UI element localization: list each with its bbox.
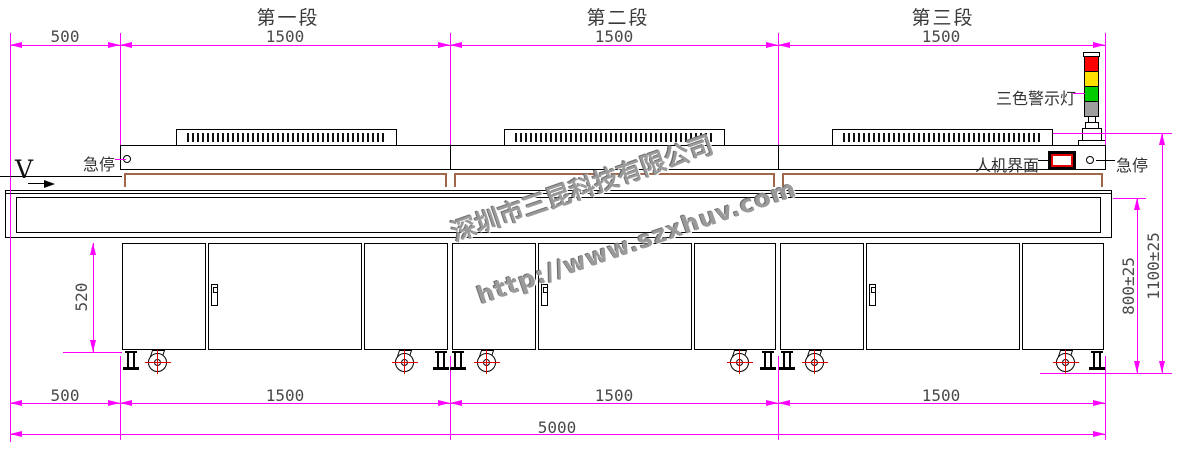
dim-arrow [438, 42, 450, 48]
segment1-vent-grille [176, 129, 397, 146]
dim-arrow [778, 42, 790, 48]
caster-cross-h [145, 362, 171, 363]
dim-arrow [1134, 361, 1140, 373]
leader-line [1038, 160, 1048, 161]
dim-bottom-500: 500 [20, 386, 110, 405]
dim-top-500: 500 [20, 27, 110, 46]
cabinet-panel [694, 243, 776, 350]
dimension-line [450, 33, 451, 145]
foot-stem [789, 353, 791, 367]
caster-cross-h [1053, 362, 1079, 363]
dim-belt-800: 800±25 [1119, 238, 1137, 334]
dimension-line [93, 243, 94, 352]
dim-arrow [766, 42, 778, 48]
tricolor-light-label: 三色警示灯 [996, 85, 1076, 109]
warning-light-pole [1084, 101, 1099, 117]
foot-stem [1099, 353, 1101, 367]
dim-arrow [778, 400, 790, 406]
caster-wheel [476, 350, 498, 374]
dim-arrow [1093, 431, 1105, 437]
dim-arrow [1093, 400, 1105, 406]
dim-arrow [120, 400, 132, 406]
caster-cross-v [157, 350, 158, 374]
cabinet-panel [780, 243, 864, 350]
foot-stem [133, 353, 135, 367]
dim-bottom-1500-a: 1500 [240, 386, 330, 405]
direction-v-label: V [15, 155, 33, 184]
leveling-foot [760, 351, 776, 372]
dim-cabinet-520: 520 [72, 249, 90, 345]
section-title-1: 第一段 [218, 3, 358, 30]
caster-wheel [804, 350, 826, 374]
vent-bars [843, 133, 1042, 142]
dimension-line [1053, 133, 1172, 134]
estop-label-right: 急停 [1116, 152, 1148, 176]
dimension-line [1105, 33, 1106, 145]
caster-wheel [147, 350, 169, 374]
caster-wheel [729, 350, 751, 374]
dim-arrow [438, 400, 450, 406]
foot-stem [437, 353, 439, 367]
engineering-drawing-canvas: 第一段 第二段 第三段 500 1500 1500 1500 500 1500 … [0, 0, 1177, 449]
caster-wheel [394, 350, 416, 374]
foot-base [450, 367, 466, 370]
dim-top-1500-a: 1500 [240, 27, 330, 46]
caster-cross-v [739, 350, 740, 374]
leader-line [1096, 160, 1115, 161]
caster-cross-h [392, 362, 418, 363]
estop-button-right [1086, 156, 1094, 164]
foot-base [123, 367, 139, 370]
caster-cross-v [404, 350, 405, 374]
dim-arrow [10, 431, 22, 437]
foot-base [779, 367, 795, 370]
caster-cross-v [1065, 350, 1066, 374]
foot-stem [454, 353, 456, 367]
dim-arrow [1093, 42, 1105, 48]
dimension-line [120, 356, 121, 440]
dim-arrow [766, 400, 778, 406]
dim-arrow [450, 400, 462, 406]
dimension-line [10, 33, 11, 442]
dimension-line [63, 352, 122, 353]
foot-base [433, 367, 449, 370]
cabinet-door [208, 243, 362, 350]
segment1-belt-frame [124, 173, 447, 187]
warning-light-base [1078, 140, 1106, 146]
door-handle [869, 284, 876, 306]
door-handle [211, 284, 218, 306]
foot-stem [460, 353, 462, 367]
dim-overall-1100: 1100±25 [1144, 218, 1162, 314]
warning-light-yellow [1084, 71, 1099, 87]
dim-arrow [1134, 198, 1140, 210]
hmi-label: 人机界面 [975, 152, 1039, 176]
foot-base [1089, 367, 1105, 370]
dim-arrow [450, 42, 462, 48]
leveling-foot [779, 351, 795, 372]
caster-cross-h [727, 362, 753, 363]
dim-arrow [1159, 133, 1165, 145]
dimension-line [1113, 198, 1146, 199]
caster-wheel [1055, 350, 1077, 374]
caster-cross-h [474, 362, 500, 363]
section-title-3: 第三段 [873, 3, 1013, 30]
vent-bars [187, 133, 386, 142]
direction-arrowhead [44, 180, 55, 188]
leveling-foot [433, 351, 449, 372]
foot-stem [1093, 353, 1095, 367]
dim-top-1500-c: 1500 [896, 27, 986, 46]
foot-base [760, 367, 776, 370]
estop-label-left: 急停 [83, 151, 115, 175]
segment3-vent-grille [832, 129, 1053, 146]
warning-light-green [1084, 86, 1099, 102]
dim-top-1500-b: 1500 [569, 27, 659, 46]
dim-arrow [120, 42, 132, 48]
dimension-line [1105, 356, 1106, 440]
caster-cross-v [814, 350, 815, 374]
foot-stem [764, 353, 766, 367]
dim-arrow [90, 340, 96, 352]
leveling-foot [450, 351, 466, 372]
segment1-upper-housing [120, 145, 451, 170]
dimension-line [120, 33, 121, 145]
hmi-screen-bezel [1051, 154, 1073, 167]
hmi-screen-icon [1048, 151, 1076, 170]
leveling-foot [123, 351, 139, 372]
foot-stem [770, 353, 772, 367]
dim-arrow [1159, 361, 1165, 373]
foot-stem [127, 353, 129, 367]
dimension-line [115, 159, 126, 160]
cabinet-panel [1022, 243, 1104, 350]
foot-stem [443, 353, 445, 367]
foot-stem [783, 353, 785, 367]
cabinet-panel [122, 243, 206, 350]
caster-cross-v [486, 350, 487, 374]
dim-bottom-1500-c: 1500 [896, 386, 986, 405]
caster-cross-h [802, 362, 828, 363]
segment3-belt-frame [782, 173, 1103, 187]
cabinet-panel [364, 243, 448, 350]
dimension-line [778, 33, 779, 145]
dim-bottom-1500-b: 1500 [569, 386, 659, 405]
section-title-2: 第二段 [548, 3, 688, 30]
dim-arrow [90, 243, 96, 255]
leveling-foot [1089, 351, 1105, 372]
cabinet-door [866, 243, 1020, 350]
warning-light-red [1084, 56, 1099, 72]
dim-overall-5000: 5000 [512, 418, 602, 437]
